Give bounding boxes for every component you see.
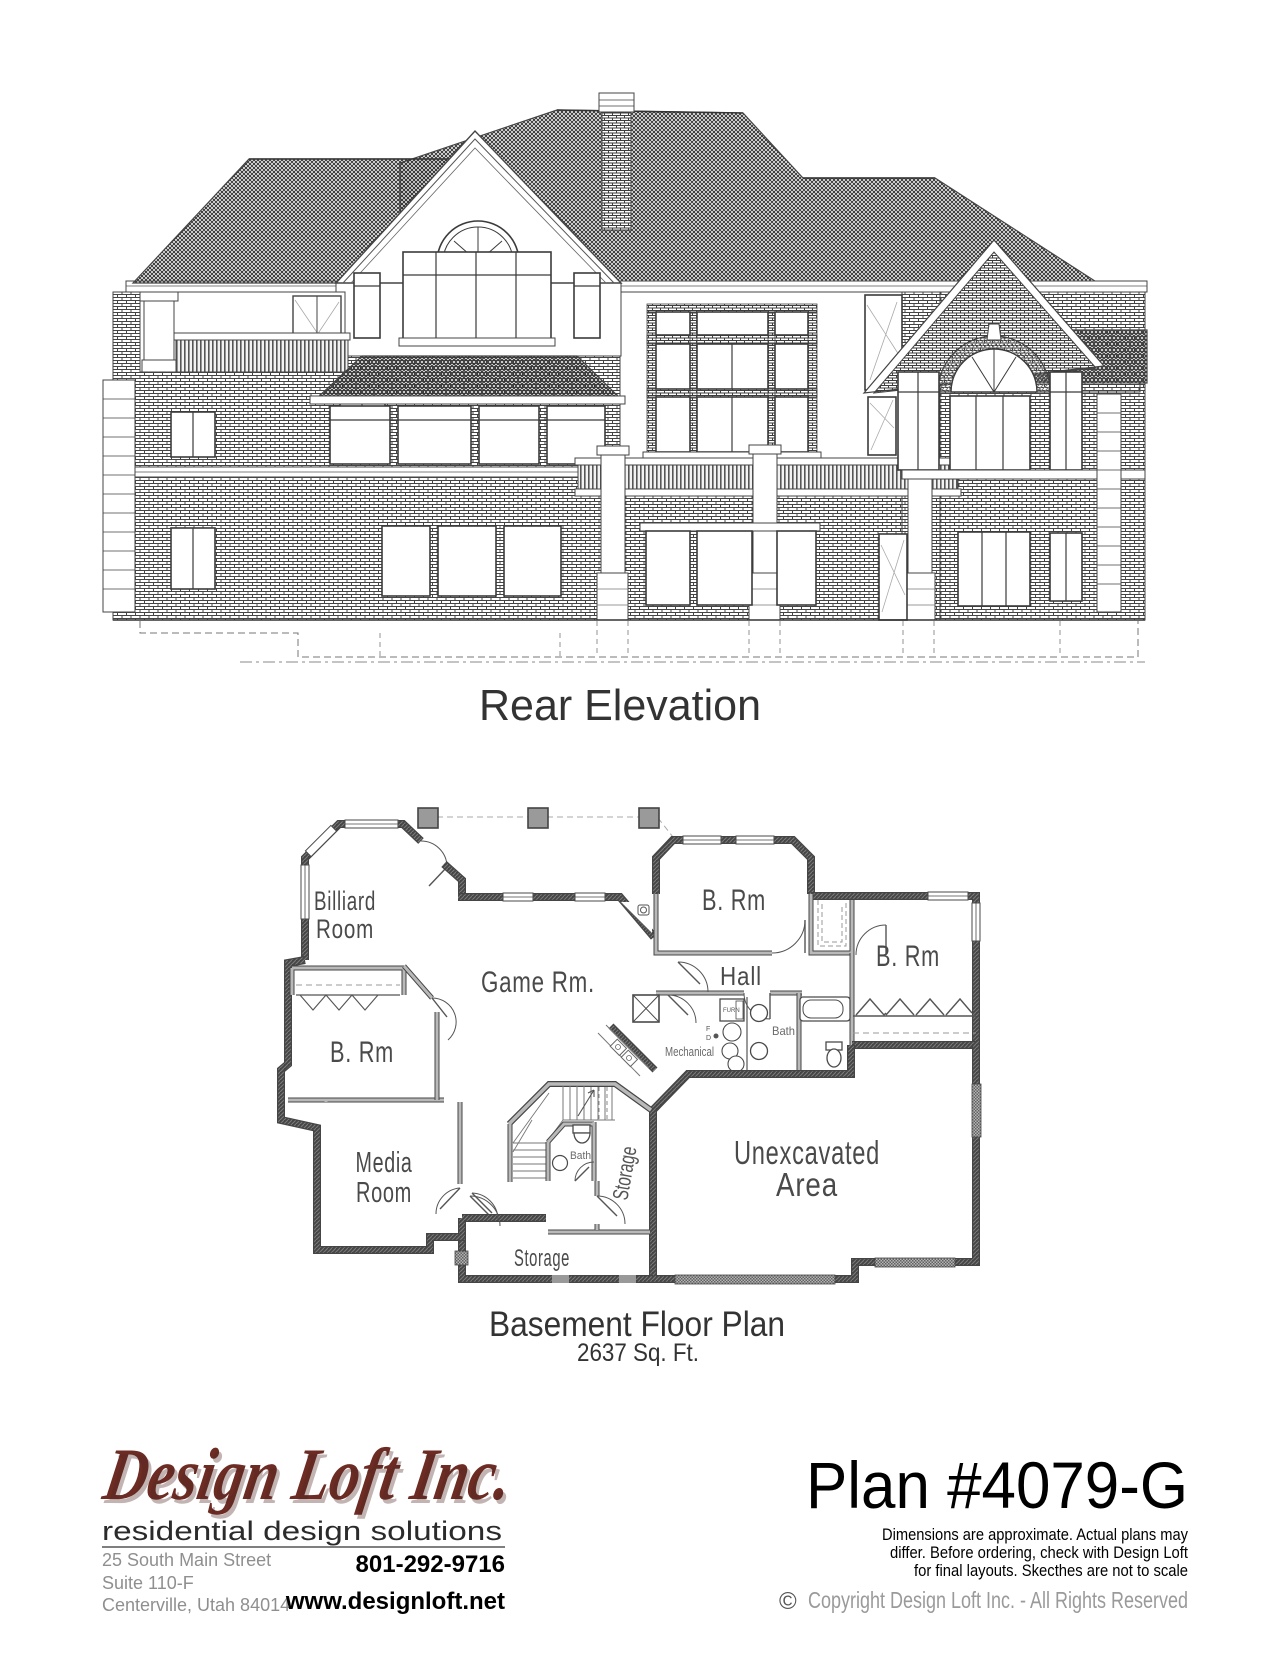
svg-text:Copyright Design Loft Inc. - A: Copyright Design Loft Inc. - All Rights … — [808, 1587, 1188, 1613]
svg-text:for final layouts. Skecthes a: for final layouts. Skecthes are not to s… — [914, 1561, 1188, 1580]
svg-text:Hall: Hall — [720, 961, 762, 991]
svg-text:Storage: Storage — [607, 1144, 641, 1202]
svg-text:Mechanical: Mechanical — [665, 1044, 714, 1059]
svg-text:25 South Main Street: 25 South Main Street — [102, 1550, 271, 1570]
svg-text:Game Rm.: Game Rm. — [481, 966, 595, 999]
svg-text:www.designloft.net: www.designloft.net — [285, 1588, 505, 1615]
svg-text:Bath: Bath — [772, 1024, 795, 1038]
svg-text:Plan #4079-G: Plan #4079-G — [806, 1448, 1188, 1522]
svg-text:Media: Media — [356, 1147, 413, 1179]
svg-text:Centerville, Utah 84014: Centerville, Utah 84014 — [102, 1595, 290, 1615]
svg-text:differ. Before ordering, chec: differ. Before ordering, check with Desi… — [890, 1543, 1188, 1562]
svg-text:2637 Sq. Ft.: 2637 Sq. Ft. — [577, 1339, 699, 1367]
svg-text:F: F — [706, 1026, 710, 1033]
svg-text:Bath: Bath — [570, 1150, 591, 1162]
svg-text:Storage: Storage — [514, 1245, 570, 1272]
svg-text:FURN: FURN — [723, 1008, 740, 1014]
svg-text:D: D — [706, 1035, 711, 1042]
svg-text:Billiard: Billiard — [314, 886, 376, 916]
svg-text:Design Loft Inc.: Design Loft Inc. — [100, 1438, 521, 1519]
svg-text:Room: Room — [316, 914, 374, 944]
svg-text:Dimensions are approximate. A: Dimensions are approximate. Actual plans… — [882, 1525, 1188, 1544]
svg-text:Rear Elevation: Rear Elevation — [479, 681, 761, 730]
svg-text:©: © — [779, 1588, 797, 1615]
svg-text:B. Rm: B. Rm — [876, 940, 940, 973]
svg-text:B. Rm: B. Rm — [702, 884, 766, 917]
svg-text:801-292-9716: 801-292-9716 — [356, 1551, 505, 1578]
svg-text:B. Rm: B. Rm — [330, 1036, 394, 1069]
svg-text:Room: Room — [356, 1177, 412, 1209]
svg-text:Area: Area — [776, 1166, 838, 1203]
svg-text:residential design solutions: residential design solutions — [102, 1516, 502, 1546]
svg-text:Suite 110-F: Suite 110-F — [102, 1573, 194, 1593]
